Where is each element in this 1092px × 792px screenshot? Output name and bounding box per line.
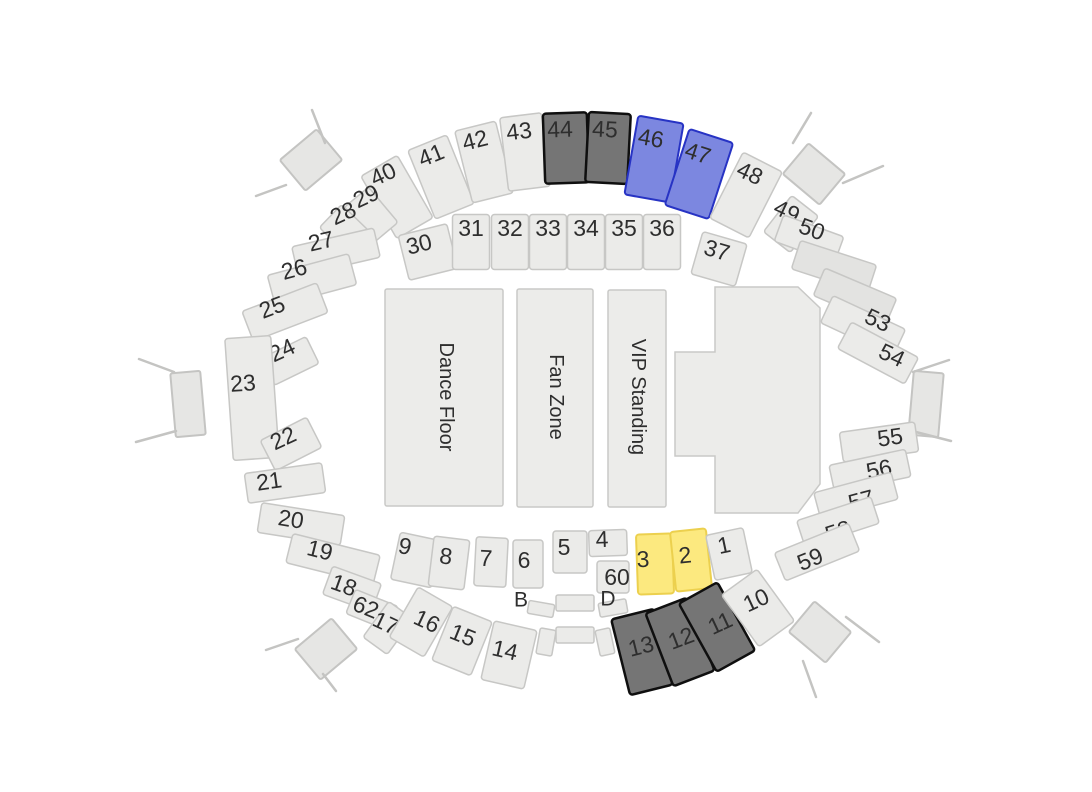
section-44[interactable]: 44 [543, 112, 589, 183]
section-label: 44 [547, 116, 574, 143]
entrance-ramp-bottom-left [266, 618, 357, 691]
entrance-ramp-shape [280, 129, 342, 190]
zone-label: Dance Floor [435, 343, 457, 452]
aisle-step [595, 628, 615, 657]
section-36[interactable]: 36 [644, 215, 681, 270]
section-6[interactable]: 6 [513, 540, 543, 588]
stage-block [675, 287, 820, 513]
entrance-ramp-line [793, 113, 811, 143]
section-label: 33 [535, 215, 561, 241]
section-1[interactable]: 1 [706, 528, 753, 581]
zone-label: Fan Zone [545, 354, 567, 440]
zone-fan-zone[interactable]: Fan Zone [517, 289, 593, 507]
zone-vip-standing[interactable]: VIP Standing [608, 290, 666, 507]
entrance-ramp-line [136, 431, 176, 442]
section-label: 7 [479, 545, 493, 572]
zone-dance-floor[interactable]: Dance Floor [385, 289, 503, 506]
section-label: 21 [255, 466, 284, 495]
section-3[interactable]: 3 [636, 533, 674, 594]
section-37[interactable]: 37 [691, 232, 747, 287]
entrance-ramp-line [803, 661, 816, 697]
seating-map-svg: Dance FloorFan ZoneVIP Standing404142434… [0, 0, 1092, 792]
section-label: 23 [229, 369, 256, 397]
entrance-ramp-shape [783, 143, 845, 204]
entrance-ramp-line [846, 617, 879, 642]
entrance-ramp-top-right [783, 113, 883, 205]
aisle-step [556, 595, 594, 611]
entrance-ramp-shape [295, 618, 357, 679]
section-label: 4 [595, 526, 609, 552]
section-label: 60 [604, 564, 630, 590]
section-33[interactable]: 33 [530, 215, 567, 270]
section-35[interactable]: 35 [606, 215, 643, 270]
section-5[interactable]: 5 [553, 531, 587, 573]
aisle-step [536, 628, 556, 656]
entrance-ramp-line [256, 185, 286, 196]
aisle-label-b: B [514, 589, 528, 612]
section-21[interactable]: 21 [244, 463, 325, 504]
section-7[interactable]: 7 [474, 537, 509, 588]
section-label: 34 [573, 215, 599, 241]
entrance-ramp-left [136, 359, 206, 442]
entrance-ramp-line [843, 166, 883, 183]
aisle-label-d: D [600, 588, 615, 611]
seating-map: Dance FloorFan ZoneVIP Standing404142434… [0, 0, 1092, 792]
section-4[interactable]: 4 [589, 526, 628, 557]
section-label: 2 [677, 541, 692, 568]
section-label: 20 [276, 504, 305, 534]
entrance-ramp-line [913, 360, 949, 372]
page: { "canvas": {"width": 1092, "height": 79… [0, 0, 1092, 792]
aisle-step [527, 600, 555, 617]
section-31[interactable]: 31 [453, 215, 490, 270]
section-label: 3 [636, 546, 650, 572]
section-label: 45 [592, 115, 619, 142]
section-label: 32 [497, 215, 523, 241]
section-8[interactable]: 8 [428, 536, 470, 590]
section-label: 31 [458, 215, 484, 241]
section-label: 55 [876, 422, 905, 451]
section-label: 35 [611, 215, 637, 241]
entrance-ramp-line [323, 674, 336, 691]
section-label: 43 [505, 117, 534, 146]
section-label: 46 [636, 123, 666, 153]
section-label: 6 [518, 547, 531, 573]
section-34[interactable]: 34 [568, 215, 605, 270]
section-label: 36 [649, 215, 675, 241]
section-45[interactable]: 45 [585, 112, 631, 184]
entrance-ramp-bottom-right [789, 601, 879, 697]
section-label: 5 [558, 534, 571, 560]
section-32[interactable]: 32 [492, 215, 529, 270]
zone-label: VIP Standing [627, 339, 649, 455]
entrance-ramp-shape [170, 371, 205, 437]
entrance-ramp-shape [789, 601, 851, 662]
entrance-ramp-line [266, 639, 298, 650]
entrance-ramp-top-left [256, 110, 342, 196]
entrance-ramp-line [139, 359, 174, 372]
aisle-step [556, 627, 594, 643]
